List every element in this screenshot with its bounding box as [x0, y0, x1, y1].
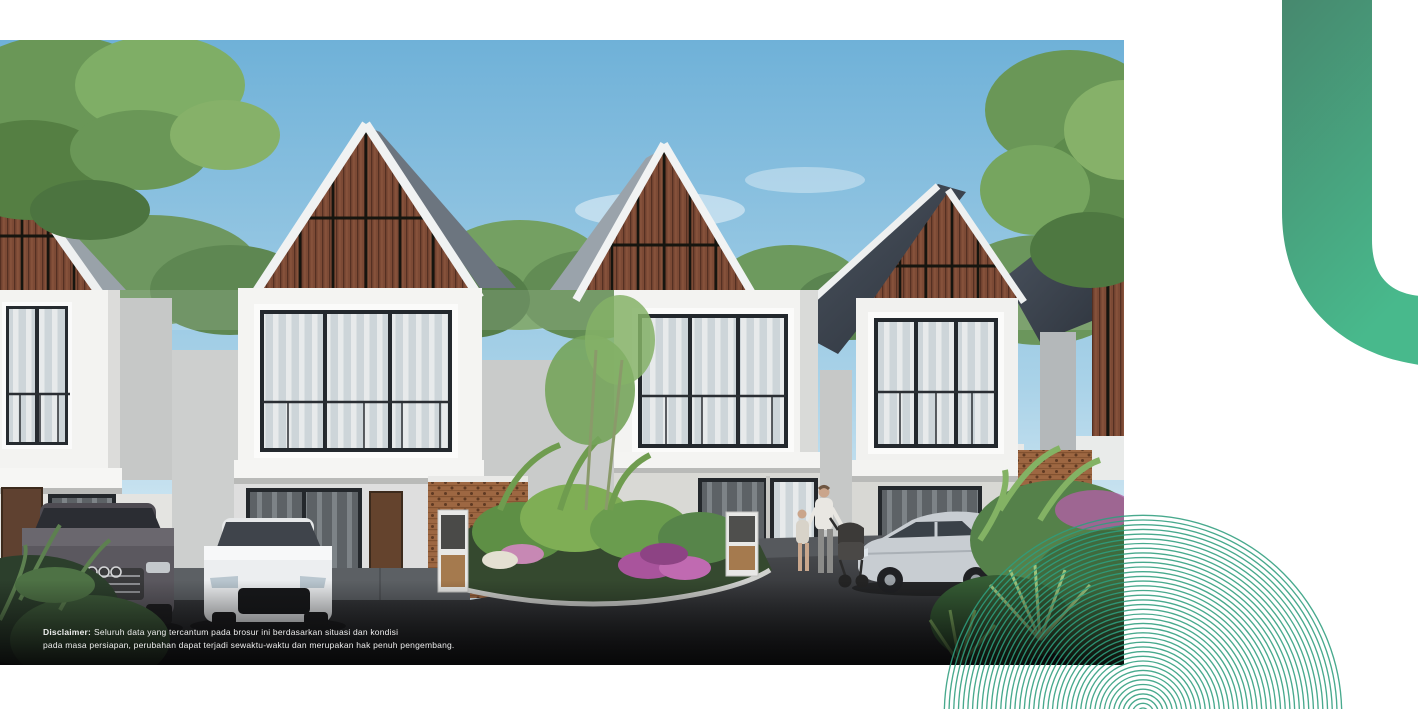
hero-render: Disclaimer:Seluruh data yang tercantum p…: [0, 40, 1124, 665]
mailbox-pillar: [726, 512, 758, 576]
disclaimer-line2: pada masa persiapan, perubahan dapat ter…: [43, 640, 455, 650]
mailbox-pillar: [438, 510, 468, 592]
brand-letter-u-graphic: [1282, 0, 1418, 365]
disclaimer-label: Disclaimer:: [43, 627, 91, 637]
render-scene: [0, 40, 1124, 665]
disclaimer-line1: Seluruh data yang tercantum pada brosur …: [94, 627, 398, 637]
brochure-page: Disclaimer:Seluruh data yang tercantum p…: [0, 0, 1418, 709]
photo-vignette: [0, 580, 1124, 665]
disclaimer-text: Disclaimer:Seluruh data yang tercantum p…: [43, 626, 703, 652]
